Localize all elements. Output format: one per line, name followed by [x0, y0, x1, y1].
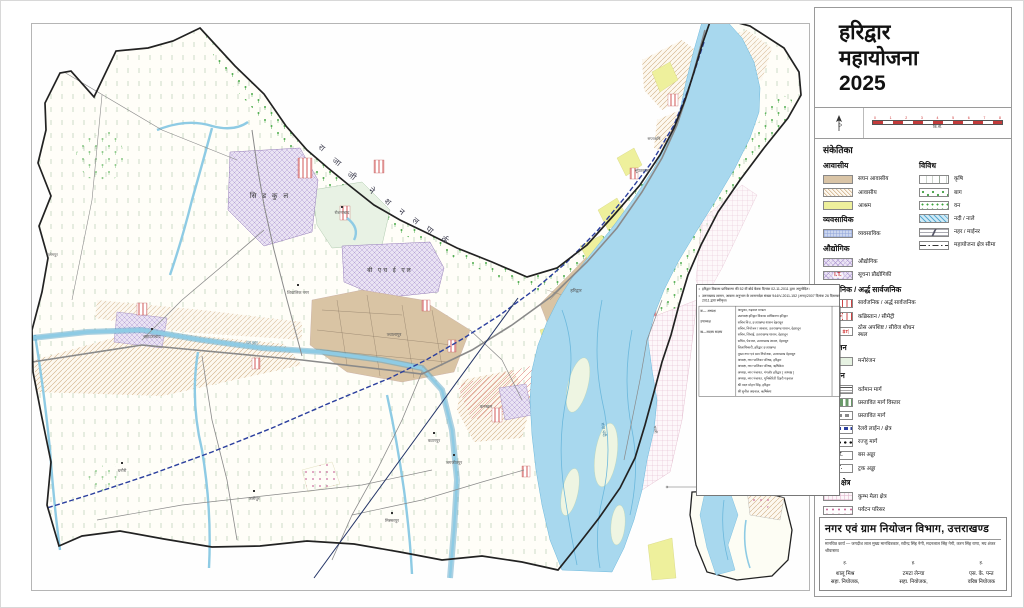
map-label: सप्तऋषि	[648, 136, 662, 141]
legend-title: संकेतिका	[823, 143, 1005, 156]
signature-mark: ह.	[968, 560, 995, 566]
legend-label: वन	[954, 203, 960, 209]
legend-label: व्यवसायिक	[858, 231, 881, 237]
legend-item: नहर / माईनर	[919, 228, 1005, 237]
map-label: जा	[330, 155, 343, 169]
legend-label: सार्वजनिक / अर्द्ध सार्वजनिक	[858, 300, 916, 306]
scale-tick: 1	[890, 116, 892, 120]
legend-label: आवासीय	[858, 190, 877, 196]
legend-label: ट्रक अड्डा	[858, 466, 875, 472]
scale-bar-block: 012345678 कि.मी.	[864, 114, 1011, 133]
legend-item: औद्योगिक	[823, 258, 919, 267]
map-label: गंग नहर	[246, 340, 258, 345]
legend-item: व्यवसायिक	[823, 229, 919, 238]
legend-label: मनोरंजन	[858, 358, 875, 364]
industrial-small	[499, 384, 532, 420]
legend-item: कृषि	[919, 175, 1005, 184]
signatory-role: सहा. नियोजक,	[831, 577, 859, 585]
map-label: ल	[410, 215, 421, 227]
scale-tick: 6	[968, 116, 970, 120]
map-label: शिवालिक नगर	[287, 290, 309, 295]
north-arrow	[815, 108, 864, 138]
legend-item: I.T.सूचना प्रौद्योगिकी	[823, 271, 919, 280]
map-title-line2: महायोजना	[839, 46, 1003, 72]
legend-label: वर्तमान मार्ग	[858, 387, 882, 393]
scale-unit: कि.मी.	[872, 125, 1003, 130]
legend-item: नदी / नाले	[919, 214, 1005, 223]
legend-label: कब्रिस्तान / सीमेट्री	[858, 314, 894, 320]
scale-tick: 0	[874, 116, 876, 120]
haridwar-master-plan-sheet: बहादराबादरोशनाबादशिवालिक नगरज्वालापुरहरि…	[0, 0, 1024, 608]
authority-member: श्री सुनील अग्रवाल, ऋषिकेश	[738, 389, 830, 395]
legend-swatch	[919, 241, 949, 250]
legend-swatch: I.T.	[823, 271, 853, 280]
authority-role: उपाध्यक्ष	[700, 319, 734, 324]
map-frame: बहादराबादरोशनाबादशिवालिक नगरज्वालापुरहरि…	[31, 23, 810, 591]
authority-role: क— अध्यक्ष	[700, 308, 734, 313]
legend-swatch	[823, 506, 853, 515]
legend-item: पर्यटन परिसर	[823, 506, 919, 515]
legend-item: वन	[919, 201, 1005, 210]
authority-table-roles: क— अध्यक्षउपाध्यक्षख—सदस्य सदस्य	[699, 306, 736, 396]
map-label: रा	[317, 142, 328, 154]
signatory-2: ह. टमटा लेन्चा सहा. नियोजक,	[899, 560, 927, 585]
north-scale-row: 012345678 कि.मी.	[815, 108, 1011, 139]
legend-swatch	[919, 228, 949, 237]
scale-tick: 8	[999, 116, 1001, 120]
approval-note: •उत्तराखण्ड शासन, आवास अनुभाग के शासनादे…	[699, 294, 841, 304]
legend-column: विविधकृषिबागवननदी / नालेनहर / माईनरमहायो…	[919, 158, 1005, 252]
legend-item: आश्रम	[823, 201, 919, 210]
signature-mark: ह.	[899, 560, 927, 566]
legend-swatch	[823, 188, 853, 197]
legend-label: प्रस्तावित मार्ग	[858, 413, 885, 419]
map-legend-panel: हरिद्वार महायोजना 2025 012345678 कि.मी. …	[814, 7, 1012, 597]
map-label: न	[397, 206, 407, 217]
map-label: बी एच ई एल	[367, 266, 412, 274]
approval-note: •हरिद्वार विकास प्राधिकरण की 52 वीं बोर्…	[699, 287, 841, 292]
legend-label: सघन आवासीय	[858, 176, 889, 182]
legend-section-title: औद्योगिक	[823, 244, 919, 254]
map-label: हरिद्वार	[570, 287, 581, 293]
legend: संकेतिका आवासीयसघन आवासीयआवासीयआश्रमव्यव…	[815, 139, 1011, 517]
signatory-name: एस. के. पन्त	[968, 569, 995, 577]
signatory-name: शालू मिश्र	[831, 569, 859, 577]
legend-section-title: आवासीय	[823, 161, 919, 171]
signatory-3: ह. एस. के. पन्त वरिष्ठ नियोजक	[968, 560, 995, 585]
legend-label: कुम्भ मेला क्षेत्र	[858, 494, 887, 500]
map-label: बहादराबाद	[143, 334, 161, 339]
legend-item: सघन आवासीय	[823, 175, 919, 184]
map-label: कनखल	[480, 404, 493, 409]
scale-tick: 3	[921, 116, 923, 120]
legend-label: रज्जु मार्ग	[858, 439, 877, 445]
legend-label: कृषि	[954, 176, 963, 182]
scale-tick: 4	[937, 116, 939, 120]
authority-table-members: आयुक्त, गढ़वाल मण्डलउपाध्यक्ष हरिद्वार व…	[736, 306, 832, 396]
legend-label: पर्यटन परिसर	[858, 507, 885, 513]
legend-label: सूचना प्रौद्योगिकी	[858, 272, 891, 278]
legend-section-title: विविध	[919, 161, 1005, 171]
signatory-role: वरिष्ठ नियोजक	[968, 577, 995, 585]
legend-label: बस अड्डा	[858, 452, 875, 458]
legend-item: आवासीय	[823, 188, 919, 197]
department-credits: मानचित्र कार्य — जगदीश लाल मुख्य मानचित्…	[825, 539, 1001, 554]
authority-role: ख—सदस्य सदस्य	[700, 329, 734, 334]
signatory-role: सहा. नियोजक,	[899, 577, 927, 585]
legend-label: महायोजना क्षेत्र सीमा	[954, 242, 995, 248]
legend-label: आश्रम	[858, 203, 871, 209]
legend-label: प्रस्तावित मार्ग विस्तार	[858, 400, 900, 406]
signature-mark: ह.	[831, 560, 859, 566]
signatory-1: ह. शालू मिश्र सहा. नियोजक,	[831, 560, 859, 585]
authority-table: क— अध्यक्षउपाध्यक्षख—सदस्य सदस्य आयुक्त,…	[699, 306, 841, 397]
legend-label: ठोस अपशिष्ट / सीवेज शोधन स्थल	[858, 325, 919, 337]
legend-swatch	[823, 229, 853, 238]
signatory-name: टमटा लेन्चा	[899, 569, 927, 577]
legend-swatch	[823, 258, 853, 267]
department-title: नगर एवं ग्राम नियोजन विभाग, उत्तराखण्ड	[825, 522, 1001, 536]
map-label: जी	[345, 169, 358, 183]
legend-swatch	[919, 214, 949, 223]
map-title-line3: 2025	[839, 71, 1003, 97]
map-title-line1: हरिद्वार	[839, 20, 1003, 46]
legend-label: नदी / नाले	[954, 216, 975, 222]
legend-label: नहर / माईनर	[954, 229, 980, 235]
legend-swatch	[823, 175, 853, 184]
legend-label: रेलवे लाईन / क्षेत्र	[858, 426, 892, 432]
scale-tick: 7	[983, 116, 985, 120]
legend-swatch	[919, 175, 949, 184]
map-label: सि ड कु ल	[250, 191, 290, 200]
scale-tick: 2	[905, 116, 907, 120]
signature-row: ह. शालू मिश्र सहा. नियोजक, ह. टमटा लेन्च…	[825, 560, 1001, 587]
map-label: धनौरी	[118, 468, 128, 473]
legend-swatch	[919, 188, 949, 197]
inset-map	[666, 486, 805, 580]
legend-label: औद्योगिक	[858, 259, 878, 265]
legend-swatch	[919, 201, 949, 210]
approval-notes-box: •हरिद्वार विकास प्राधिकरण की 52 वीं बोर्…	[696, 284, 840, 496]
legend-section-title: व्यवसायिक	[823, 215, 919, 225]
scale-tick: 5	[952, 116, 954, 120]
approval-bullets: •हरिद्वार विकास प्राधिकरण की 52 वीं बोर्…	[699, 287, 841, 303]
master-plan-map: बहादराबादरोशनाबादशिवालिक नगरज्वालापुरहरि…	[32, 24, 807, 588]
department-box: नगर एवं ग्राम नियोजन विभाग, उत्तराखण्ड म…	[819, 517, 1007, 591]
legend-item: महायोजना क्षेत्र सीमा	[919, 241, 1005, 250]
legend-swatch	[823, 201, 853, 210]
legend-label: बाग	[954, 190, 962, 196]
map-title-block: हरिद्वार महायोजना 2025	[815, 8, 1011, 108]
map-label: रोशनाबाद	[335, 210, 351, 215]
legend-item: बाग	[919, 188, 1005, 197]
